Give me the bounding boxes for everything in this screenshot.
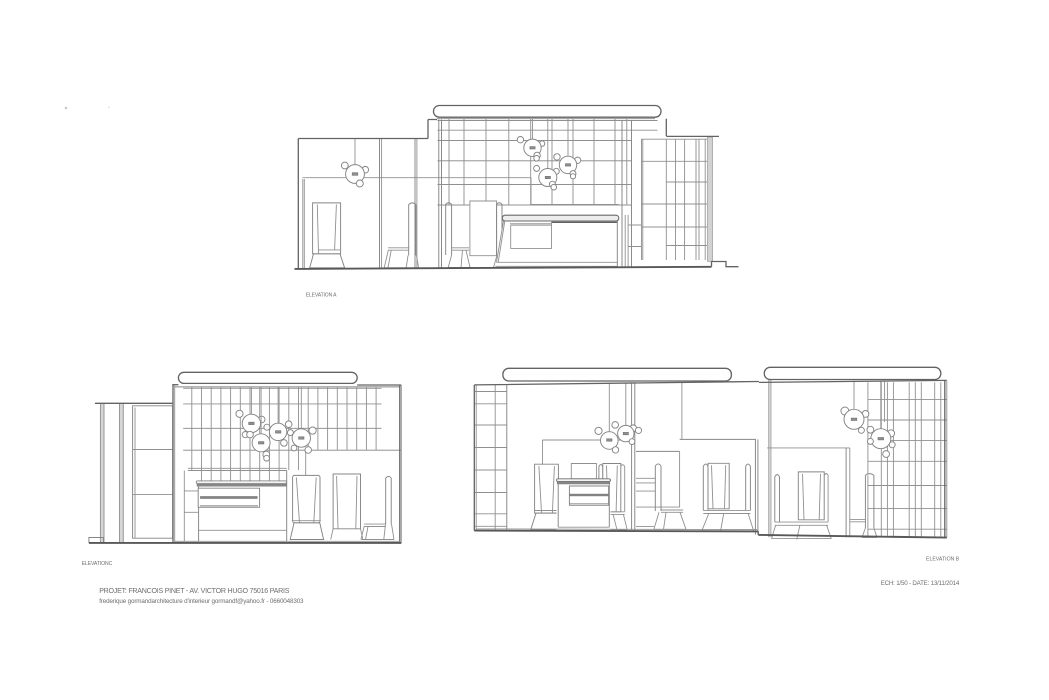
- svg-text:frederique gormandarchitecture: frederique gormandarchitecture d'interie…: [99, 598, 304, 605]
- svg-text:ELEVATION B: ELEVATION B: [926, 557, 960, 563]
- svg-text:ECH: 1/50 - DATE: 13/11/2014: ECH: 1/50 - DATE: 13/11/2014: [881, 580, 960, 587]
- svg-text:PROJET: FRANCOIS PINET - AV.: PROJET: FRANCOIS PINET - AV. VICTOR HUGO…: [99, 587, 290, 595]
- svg-text:ELEVATIONC: ELEVATIONC: [82, 561, 113, 567]
- svg-text:ELEVATION A: ELEVATION A: [306, 293, 337, 299]
